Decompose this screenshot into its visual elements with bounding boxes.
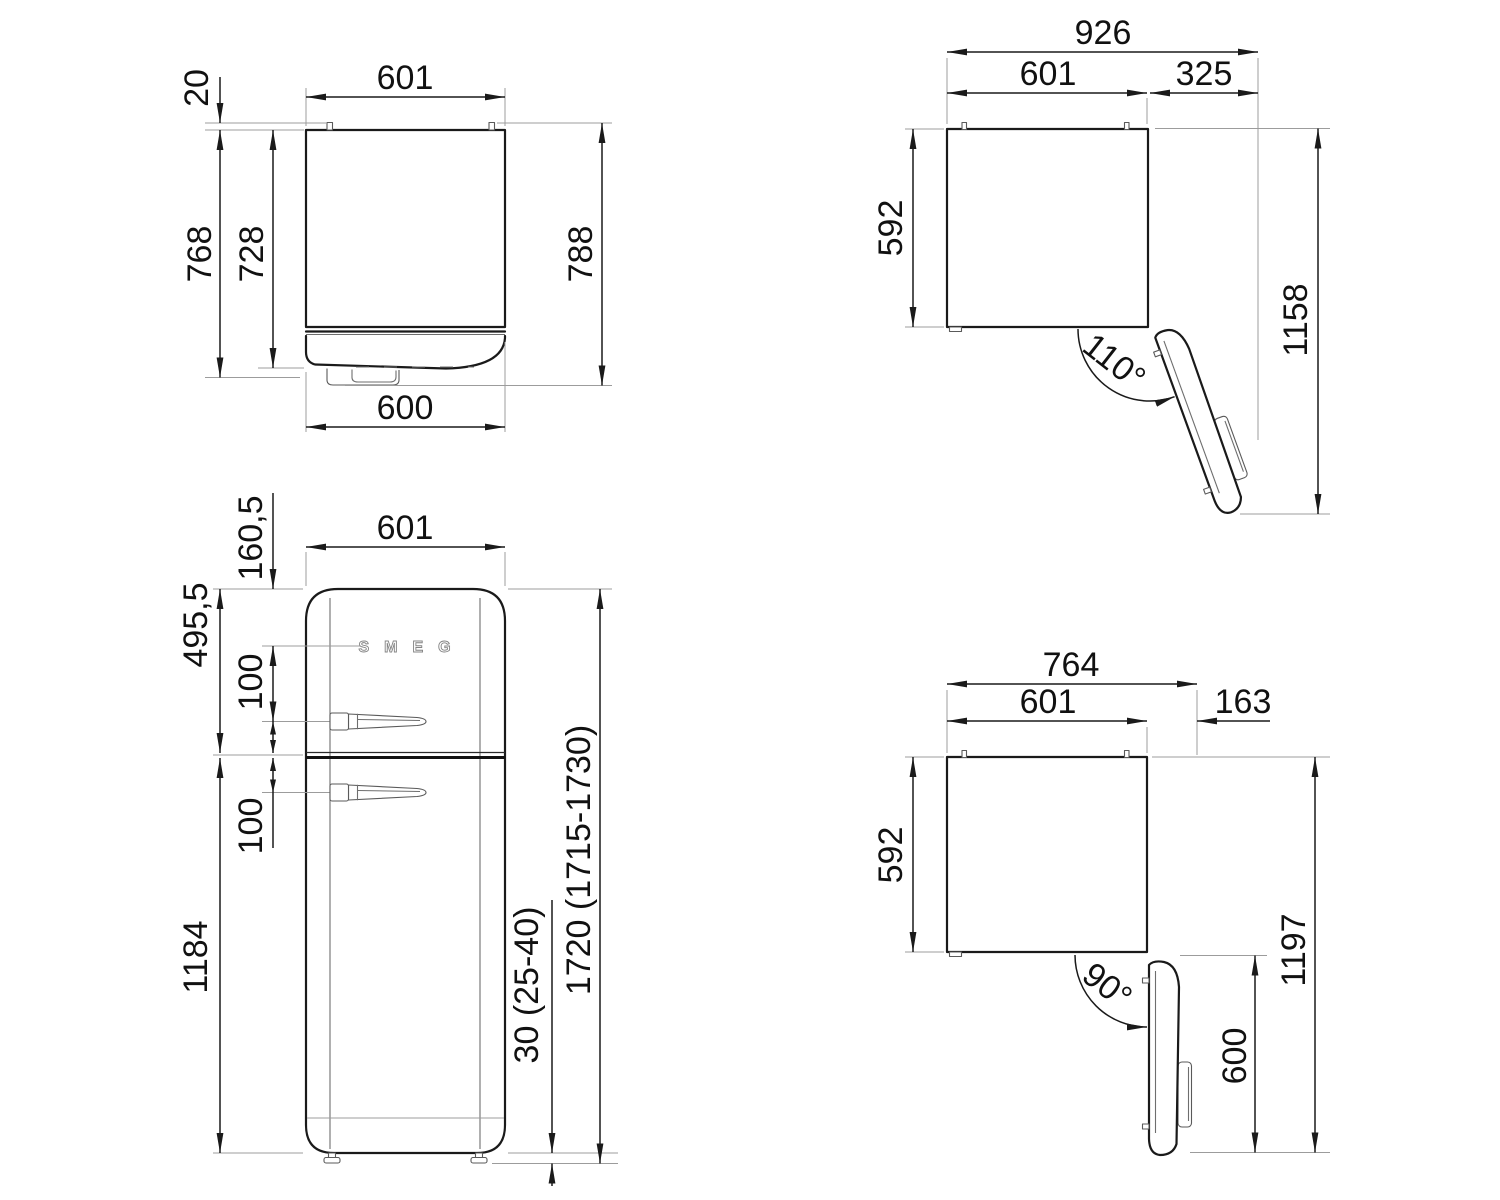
dim-label-110-door-extension: 325	[1176, 55, 1233, 93]
foot-base	[471, 1158, 487, 1164]
foot-base	[324, 1158, 340, 1164]
dim-label-90-body-depth: 592	[872, 827, 910, 884]
fridge-body-side	[306, 123, 505, 386]
door-hinge-lug	[1143, 1124, 1150, 1129]
dim-label-90-door-extension: 163	[1215, 683, 1272, 721]
dim-label-110-body-depth: 592	[872, 200, 910, 257]
dim-label-front-lower-door: 1184	[177, 920, 215, 993]
dim-label-110-body-width: 601	[1020, 55, 1077, 93]
side-view: 601 20 768 728 788 600	[178, 59, 612, 432]
door-open-90	[1143, 961, 1192, 1155]
hinge-pin	[962, 751, 967, 758]
door-handle	[1178, 1062, 1192, 1127]
dim-label-side-pin-gap: 20	[178, 69, 216, 107]
dim-label-front-lower-handle-gap: 100	[232, 798, 270, 855]
levelling-foot-left	[324, 1153, 340, 1163]
hinge-pin	[962, 123, 967, 130]
dim-label-front-width: 601	[377, 509, 434, 547]
fridge-body-top	[947, 123, 1148, 332]
top-view-90: 764 601 163 592 600 1197 90°	[872, 646, 1330, 1155]
dim-label-90-door-depth: 600	[1216, 1028, 1254, 1085]
top-view-110: 926 601 325 592 1158 110°	[872, 14, 1330, 518]
hinge-pin	[1125, 123, 1130, 130]
hinge-pin	[489, 123, 495, 131]
dim-label-110-total-width: 926	[1075, 14, 1132, 52]
side-body-outline	[306, 130, 505, 327]
dimension-drawing: 601 20 768 728 788 600	[0, 0, 1500, 1200]
dim-label-front-upper-section: 495,5	[177, 582, 215, 667]
dim-label-side-depth-door: 768	[181, 226, 219, 283]
door-hinge-lug	[1143, 978, 1150, 983]
handle-base	[330, 784, 349, 801]
levelling-foot-right	[471, 1153, 487, 1163]
front-view: SMEG	[177, 493, 618, 1186]
dim-label-front-feet: 30 (25-40)	[508, 907, 546, 1064]
fridge-body-front	[306, 589, 505, 1153]
fridge-body-top	[947, 751, 1147, 957]
brand-logo: SMEG	[358, 639, 465, 656]
hinge-pin	[327, 123, 333, 131]
dim-label-90-body-width: 601	[1020, 683, 1077, 721]
dim-label-side-bottom-width: 600	[377, 389, 434, 427]
dim-label-side-depth-total: 788	[562, 226, 600, 283]
dim-label-90-angle: 90°	[1075, 955, 1139, 1017]
foot-tab	[950, 327, 962, 332]
top-body-outline	[947, 129, 1148, 327]
door-outline	[1149, 961, 1179, 1155]
front-outline	[306, 589, 505, 1153]
side-base-outline	[306, 336, 505, 369]
dim-label-110-total-depth: 1158	[1277, 283, 1315, 356]
dim-label-90-total-width: 764	[1043, 646, 1100, 684]
door-hinge-lug	[1204, 487, 1212, 494]
handle-base	[330, 713, 349, 730]
hinge-pin	[1125, 751, 1130, 758]
dim-label-110-angle: 110°	[1076, 326, 1153, 398]
foot-stem	[476, 1153, 483, 1158]
door-hinge-lug	[1154, 350, 1162, 357]
dim-label-side-depth-body: 728	[233, 226, 271, 283]
top-body-outline	[947, 757, 1147, 952]
door-open-110	[1148, 321, 1258, 519]
foot-stem	[329, 1153, 336, 1158]
dim-label-front-total-height: 1720 (1715-1730)	[560, 725, 598, 995]
dim-label-side-top-width: 601	[377, 59, 434, 97]
dim-label-front-upper-handle-gap: 100	[232, 654, 270, 711]
dim-label-front-logo-offset: 160,5	[232, 495, 270, 580]
foot-tab	[950, 952, 962, 957]
dim-label-90-total-depth: 1197	[1275, 913, 1313, 986]
spec-sheet-page: 601 20 768 728 788 600	[0, 0, 1500, 1200]
